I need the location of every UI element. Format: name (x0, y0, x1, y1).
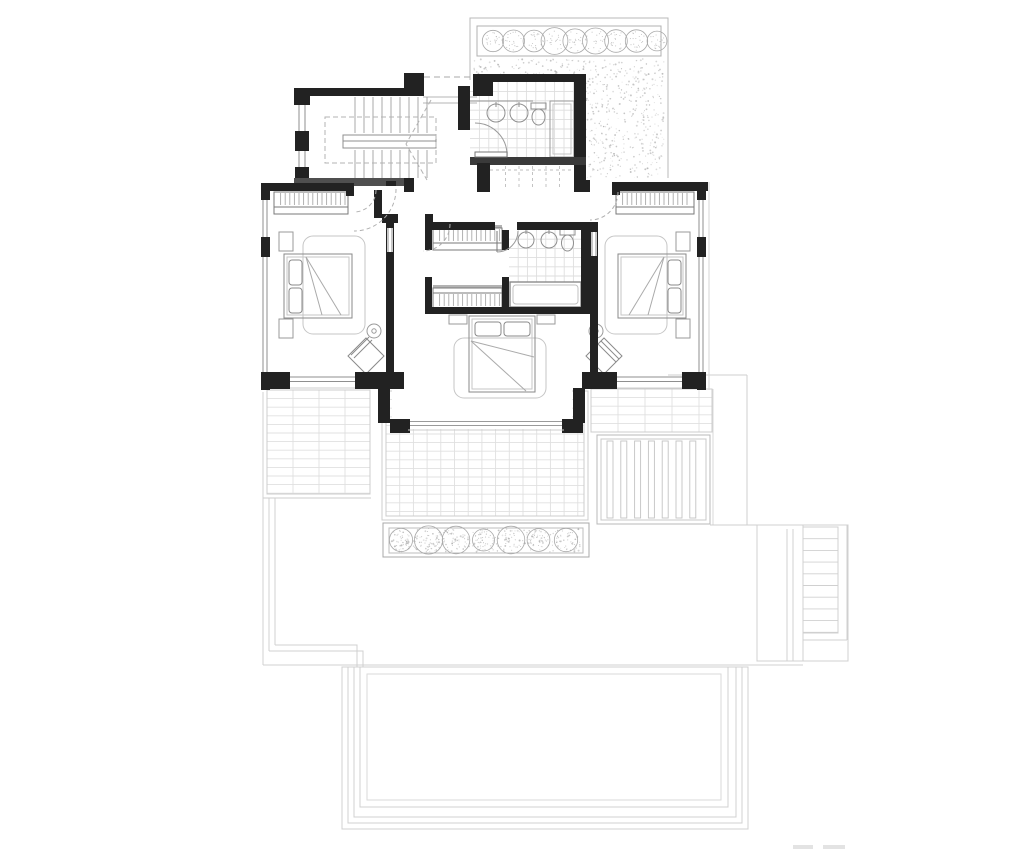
bush-dot (421, 545, 422, 546)
bush-dot (495, 41, 496, 42)
bl-chair (348, 338, 384, 374)
top-terrace-gravel-dot (628, 94, 629, 95)
top-terrace-gravel-dot (632, 147, 633, 148)
planter-center-gravel-dot (564, 547, 565, 548)
bush-dot (611, 43, 612, 44)
planter-center-gravel-dot (484, 549, 485, 550)
top-terrace-gravel-dot (476, 71, 477, 72)
bush-dot (570, 532, 571, 533)
top-terrace-gravel-dot (573, 60, 574, 61)
planter-center-gravel-dot (555, 531, 556, 532)
bush-dot (580, 37, 581, 38)
bush-dot (534, 533, 535, 534)
top-terrace-gravel-dot (634, 138, 635, 139)
bush-dot (614, 32, 615, 33)
bush-dot (428, 549, 429, 550)
bush-dot (453, 530, 454, 531)
planter-center-gravel-dot (579, 544, 580, 545)
bush-dot (543, 41, 544, 42)
louver-slat (690, 441, 696, 518)
top-terrace-gravel-dot (606, 111, 607, 112)
bush-dot (586, 36, 587, 37)
top-terrace-gravel-dot (647, 162, 648, 163)
top-terrace-gravel-dot (631, 116, 632, 117)
planter-center-gravel-dot (486, 531, 487, 532)
top-terrace-gravel-dot (590, 131, 591, 132)
top-terrace-gravel-dot (614, 140, 615, 141)
planter-center-gravel-dot (519, 540, 521, 542)
planter-center-gravel-dot (397, 534, 398, 535)
hall-door-nub (386, 181, 396, 186)
planter-center-gravel-dot (447, 549, 448, 550)
ensuite-sink-1 (518, 232, 534, 248)
planter-center-gravel-dot (436, 537, 438, 539)
planter-center-gravel-dot (488, 551, 489, 552)
planter-center-gravel-dot (529, 530, 530, 531)
top-terrace-gravel-dot (595, 107, 597, 109)
top-terrace-gravel-dot (653, 146, 655, 148)
bush-dot (539, 530, 540, 531)
bush-dot (535, 39, 536, 40)
lower-rect-1 (342, 667, 748, 829)
bush-dot (554, 31, 555, 32)
top-terrace-gravel-dot (604, 158, 605, 159)
planter-center-gravel-dot (547, 536, 548, 537)
top-terrace-gravel-dot (626, 84, 627, 85)
planter-center-gravel-dot (492, 543, 493, 544)
planter-center-gravel-dot (454, 540, 456, 542)
top-terrace-gravel-dot (611, 126, 612, 127)
top-terrace-gravel-dot (638, 80, 639, 81)
top-terrace-gravel-dot (657, 94, 658, 95)
wall-bath-top-pillar (473, 74, 493, 96)
top-terrace-gravel-dot (589, 164, 590, 165)
bush-dot (565, 45, 566, 46)
planter-center-gravel-dot (396, 549, 397, 550)
planter-center-gravel-dot (572, 532, 573, 533)
wall-bath-west (458, 86, 470, 130)
top-terrace-gravel-dot (611, 78, 613, 80)
top-terrace-gravel-dot (623, 113, 625, 115)
planter-center-gravel-dot (448, 530, 449, 531)
bush-dot (396, 545, 397, 546)
wall-br-top-cap (612, 182, 620, 195)
top-terrace-gravel-dot (618, 85, 620, 87)
planter-center-gravel-dot (403, 542, 404, 543)
bush-dot (620, 48, 621, 49)
top-terrace-gravel-dot (562, 63, 563, 64)
top-terrace-gravel-dot (555, 71, 557, 73)
top-terrace-gravel-dot (641, 143, 643, 145)
top-terrace-gravel-dot (649, 88, 651, 90)
top-terrace-gravel-dot (599, 123, 600, 124)
top-terrace-gravel-dot (519, 67, 520, 68)
top-terrace-gravel-dot (661, 145, 662, 146)
planter-center-gravel-dot (437, 535, 439, 537)
planter-center-gravel-dot (462, 548, 464, 550)
bush-dot (639, 40, 640, 41)
top-terrace-gravel-dot (622, 82, 623, 83)
bush-dot (453, 533, 454, 534)
planter-center-gravel-dot (540, 531, 542, 533)
bush-dot (638, 45, 639, 46)
ms-pillow-1 (475, 322, 501, 336)
bush-dot (426, 551, 427, 552)
top-terrace-gravel-dot (611, 140, 613, 142)
bush-dot (487, 35, 488, 36)
top-terrace-gravel-dot (596, 83, 597, 84)
closet-wardrobe-top-hatch (440, 229, 500, 241)
bush-dot (451, 532, 452, 533)
bush-dot (571, 543, 572, 544)
top-terrace-gravel-dot (633, 76, 634, 77)
top-terrace-gravel-dot (613, 64, 614, 65)
bush-dot (421, 536, 422, 537)
bush-circle (625, 30, 647, 52)
top-terrace-gravel-dot (602, 67, 604, 69)
top-terrace-gravel-dot (474, 69, 475, 70)
top-terrace-gravel-dot (653, 84, 654, 85)
top-terrace-gravel-dot (610, 169, 612, 171)
bush-dot (602, 41, 603, 42)
top-terrace-gravel-dot (601, 98, 602, 99)
top-terrace-gravel-dot (642, 147, 644, 149)
top-terrace-gravel-dot (612, 156, 613, 157)
planter-center-gravel-dot (556, 541, 557, 542)
planter-center-gravel-dot (455, 539, 456, 540)
top-terrace-gravel-dot (662, 73, 664, 75)
top-terrace-gravel-dot (623, 139, 624, 140)
bush-dot (520, 546, 521, 547)
top-terrace-gravel-dot (663, 139, 664, 140)
top-terrace-gravel-dot (550, 69, 552, 71)
top-terrace-gravel-dot (592, 78, 594, 80)
planter-center-gravel-dot (402, 531, 404, 533)
bush-dot (518, 35, 519, 36)
lower-rect-4 (360, 667, 728, 807)
top-terrace-gravel-dot (607, 74, 608, 75)
bush-dot (549, 34, 550, 35)
top-terrace-gravel-dot (644, 110, 645, 111)
top-terrace-gravel-dot (596, 155, 597, 156)
planter-center-gravel-dot (528, 542, 530, 544)
top-terrace-gravel-dot (622, 136, 624, 138)
bush-dot (536, 48, 537, 49)
top-terrace-gravel-dot (660, 102, 662, 104)
bush-dot (509, 546, 510, 547)
top-terrace-gravel-dot (657, 64, 659, 66)
planter-center-gravel-dot (485, 543, 486, 544)
wall-closet-west (477, 163, 490, 192)
bush-dot (504, 531, 505, 532)
louver-slat (635, 441, 641, 518)
top-terrace-gravel-dot (655, 114, 657, 116)
top-terrace-gravel-dot (623, 143, 624, 144)
bush-dot (600, 40, 601, 41)
top-terrace-gravel-dot (636, 167, 638, 169)
bush-dot (592, 32, 593, 33)
top-terrace-gravel-dot (591, 144, 592, 145)
top-terrace-gravel-dot (645, 101, 646, 102)
top-terrace-gravel-dot (616, 73, 618, 75)
top-terrace-gravel-dot (606, 95, 608, 97)
top-terrace-gravel-dot (621, 89, 622, 90)
top-terrace-gravel-dot (630, 146, 631, 147)
bush-dot (570, 31, 571, 32)
bush-dot (475, 535, 476, 536)
bush-dot (653, 36, 654, 37)
bush-dot (566, 549, 567, 550)
top-terrace-gravel-dot (595, 106, 596, 107)
wall-bl-east-jamb (374, 190, 382, 218)
bush-dot (664, 42, 665, 43)
top-terrace-gravel-dot (636, 60, 637, 61)
bush-dot (486, 39, 487, 40)
top-terrace-gravel-dot (610, 158, 611, 159)
bush-dot (507, 37, 508, 38)
planter-center-gravel-dot (511, 550, 512, 551)
bush-dot (557, 536, 558, 537)
bush-dot (408, 535, 409, 536)
bush-dot (513, 49, 514, 50)
planter-center-gravel-dot (416, 535, 418, 537)
wall-ensuite-east (581, 222, 590, 314)
bush-dot (464, 545, 465, 546)
top-terrace-gravel-dot (610, 144, 612, 146)
top-terrace-gravel-dot (630, 169, 631, 170)
wall-stair-bottom-cap (404, 178, 414, 192)
top-terrace-gravel-dot (599, 162, 601, 164)
top-terrace-gravel-dot (652, 85, 653, 86)
ext-stairs-treads (803, 539, 838, 633)
footer-smudge-2 (823, 845, 845, 849)
bush-dot (533, 47, 534, 48)
bush-dot (636, 50, 637, 51)
bush-dot (550, 38, 551, 39)
bush-dot (530, 540, 531, 541)
planter-center-gravel-dot (575, 547, 577, 549)
bush-dot (662, 40, 663, 41)
bush-dot (512, 44, 513, 45)
planter-center-gravel-dot (487, 543, 488, 544)
wall-ms-bottom (425, 307, 590, 314)
bush-dot (419, 542, 420, 543)
bush-circle (523, 30, 545, 52)
wall-bl-se-block (355, 372, 404, 389)
bush-dot (490, 43, 491, 44)
bush-dot (544, 537, 545, 538)
top-terrace-gravel-dot (657, 173, 658, 174)
bush-dot (614, 34, 615, 35)
wall-closet-mid-2 (502, 277, 509, 308)
bush-dot (549, 42, 550, 43)
top-terrace-gravel-dot (624, 92, 626, 94)
top-terrace-gravel-dot (609, 63, 610, 64)
top-terrace-gravel-dot (642, 150, 644, 152)
pergola-outer (597, 435, 710, 524)
bush-dot (655, 44, 656, 45)
bush-circle (527, 529, 550, 552)
top-terrace-gravel-dot (587, 87, 588, 88)
planter-center-gravel-dot (578, 528, 580, 530)
bush-dot (620, 43, 621, 44)
planter-center-gravel-dot (434, 550, 435, 551)
top-terrace-gravel-dot (588, 81, 590, 83)
top-terrace-gravel-dot (619, 103, 621, 105)
top-terrace-gravel-dot (655, 159, 656, 160)
pergola-inner (601, 439, 706, 520)
bush-dot (657, 39, 658, 40)
bush-dot (505, 40, 506, 41)
bush-dot (456, 548, 457, 549)
planter-center-gravel-dot (502, 535, 504, 537)
top-terrace-gravel-dot (603, 160, 605, 162)
planter-center-gravel-dot (526, 534, 527, 535)
top-terrace-gravel-dot (639, 139, 641, 141)
planter-center-gravel-dot (550, 534, 552, 536)
bush-dot (656, 45, 657, 46)
top-terrace-gravel-dot (628, 81, 630, 83)
top-terrace-gravel-dot (642, 163, 643, 164)
top-terrace-gravel-dot (619, 159, 621, 161)
bush-dot (447, 532, 448, 533)
top-terrace-gravel-dot (595, 103, 596, 104)
planter-center-gravel-dot (493, 550, 494, 551)
bush-dot (639, 46, 640, 47)
bush-dot (511, 537, 512, 538)
bush-dot (650, 36, 651, 37)
top-terrace-gravel-dot (651, 116, 652, 117)
top-terrace-gravel-dot (605, 134, 607, 136)
top-terrace-gravel-dot (605, 152, 607, 154)
top-terrace-gravel-dot (591, 141, 592, 142)
wall-bl-west-2 (261, 237, 270, 257)
top-terrace-gravel-dot (598, 157, 599, 158)
lower-outline-step1 (275, 645, 357, 667)
top-terrace-gravel-dot (610, 98, 611, 99)
top-terrace-gravel-dot (602, 142, 603, 143)
wall-master-se (573, 388, 585, 423)
top-terrace-gravel-dot (635, 76, 637, 78)
bush-dot (465, 541, 466, 542)
planter-center-gravel-dot (480, 537, 482, 539)
planter-center-gravel-dot (435, 539, 437, 541)
top-terrace-gravel-dot (618, 62, 620, 64)
planter-center-gravel-dot (512, 530, 513, 531)
bush-dot (430, 539, 431, 540)
top-terrace-gravel-dot (605, 66, 607, 68)
top-terrace-gravel-dot (593, 61, 594, 62)
top-terrace-gravel-dot (528, 62, 530, 64)
planter-center-gravel-dot (557, 545, 559, 547)
top-terrace-gravel-dot (609, 127, 611, 129)
top-terrace-gravel-dot (634, 164, 636, 166)
bush-dot (479, 532, 480, 533)
top-terrace-gravel-dot (601, 133, 602, 134)
top-terrace-gravel-dot (586, 100, 587, 101)
bush-dot (484, 531, 485, 532)
bush-dot (392, 541, 393, 542)
top-terrace-gravel-dot (660, 98, 662, 100)
bush-dot (530, 539, 531, 540)
bush-dot (459, 546, 460, 547)
bush-dot (551, 40, 552, 41)
planter-center-gravel-dot (541, 537, 543, 539)
top-terrace-gravel-dot (593, 169, 594, 170)
top-terrace-gravel-dot (591, 118, 593, 120)
top-terrace-gravel-dot (599, 168, 601, 170)
bush-dot (406, 541, 407, 542)
ms-nightstand-2 (537, 315, 555, 324)
top-terrace-gravel-dot (659, 77, 660, 78)
top-terrace-gravel-dot (643, 116, 645, 118)
planter-center-gravel-dot (523, 529, 525, 531)
top-terrace-gravel-dot (597, 74, 599, 76)
bush-dot (659, 41, 660, 42)
terrace-left-grid-rows (267, 399, 370, 494)
top-terrace-gravel-dot (592, 145, 593, 146)
top-terrace-gravel-dot (512, 66, 513, 67)
bush-dot (547, 40, 548, 41)
top-terrace-gravel-dot (533, 59, 534, 60)
top-terrace-gravel-dot (634, 133, 636, 135)
planter-center-gravel-dot (510, 530, 512, 532)
bush-dot (436, 542, 437, 543)
top-terrace-gravel-dot (594, 134, 595, 135)
bush-dot (576, 33, 577, 34)
top-terrace-gravel-dot (628, 84, 629, 85)
top-terrace-gravel-dot (645, 126, 647, 128)
top-terrace-gravel-dot (620, 97, 621, 98)
top-terrace-gravel-dot (643, 130, 645, 132)
top-terrace-gravel-dot (527, 73, 529, 75)
wall-closet-mid-1 (502, 230, 509, 250)
bush-dot (458, 539, 459, 540)
bush-dot (508, 537, 509, 538)
top-terrace-gravel-dot (649, 149, 651, 151)
bush-dot (516, 46, 517, 47)
planter-center-gravel-dot (464, 535, 465, 536)
bush-dot (477, 539, 478, 540)
top-terrace-gravel-dot (647, 117, 648, 118)
planter-center-gravel-dot (482, 540, 483, 541)
planter-center-gravel-dot (552, 545, 553, 546)
top-terrace-gravel-dot (612, 108, 613, 109)
wall-br-top (612, 182, 708, 191)
top-terrace-gravel-dot (646, 63, 647, 64)
top-terrace-gravel-dot (659, 96, 660, 97)
top-terrace-gravel-dot (618, 118, 619, 119)
planter-center-gravel-dot (402, 535, 403, 536)
top-terrace-gravel-dot (661, 80, 663, 82)
top-terrace-gravel-dot (657, 85, 658, 86)
planter-center-gravel-dot (439, 532, 440, 533)
top-terrace-gravel-dot (616, 177, 617, 178)
bush-dot (655, 48, 656, 49)
top-terrace-gravel-dot (621, 158, 622, 159)
top-terrace-gravel-dot (652, 96, 654, 98)
top-terrace-gravel-dot (601, 161, 603, 163)
bush-dot (408, 543, 409, 544)
top-terrace-gravel-dot (625, 70, 626, 71)
bl-bed (284, 254, 352, 318)
planter-center-gravel-dot (429, 551, 430, 552)
top-terrace-gravel-dot (589, 78, 591, 80)
hall-door-swing (354, 190, 376, 212)
bush-dot (595, 40, 596, 41)
planter-center-gravel-dot (486, 534, 487, 535)
top-terrace-gravel-dot (660, 130, 662, 132)
